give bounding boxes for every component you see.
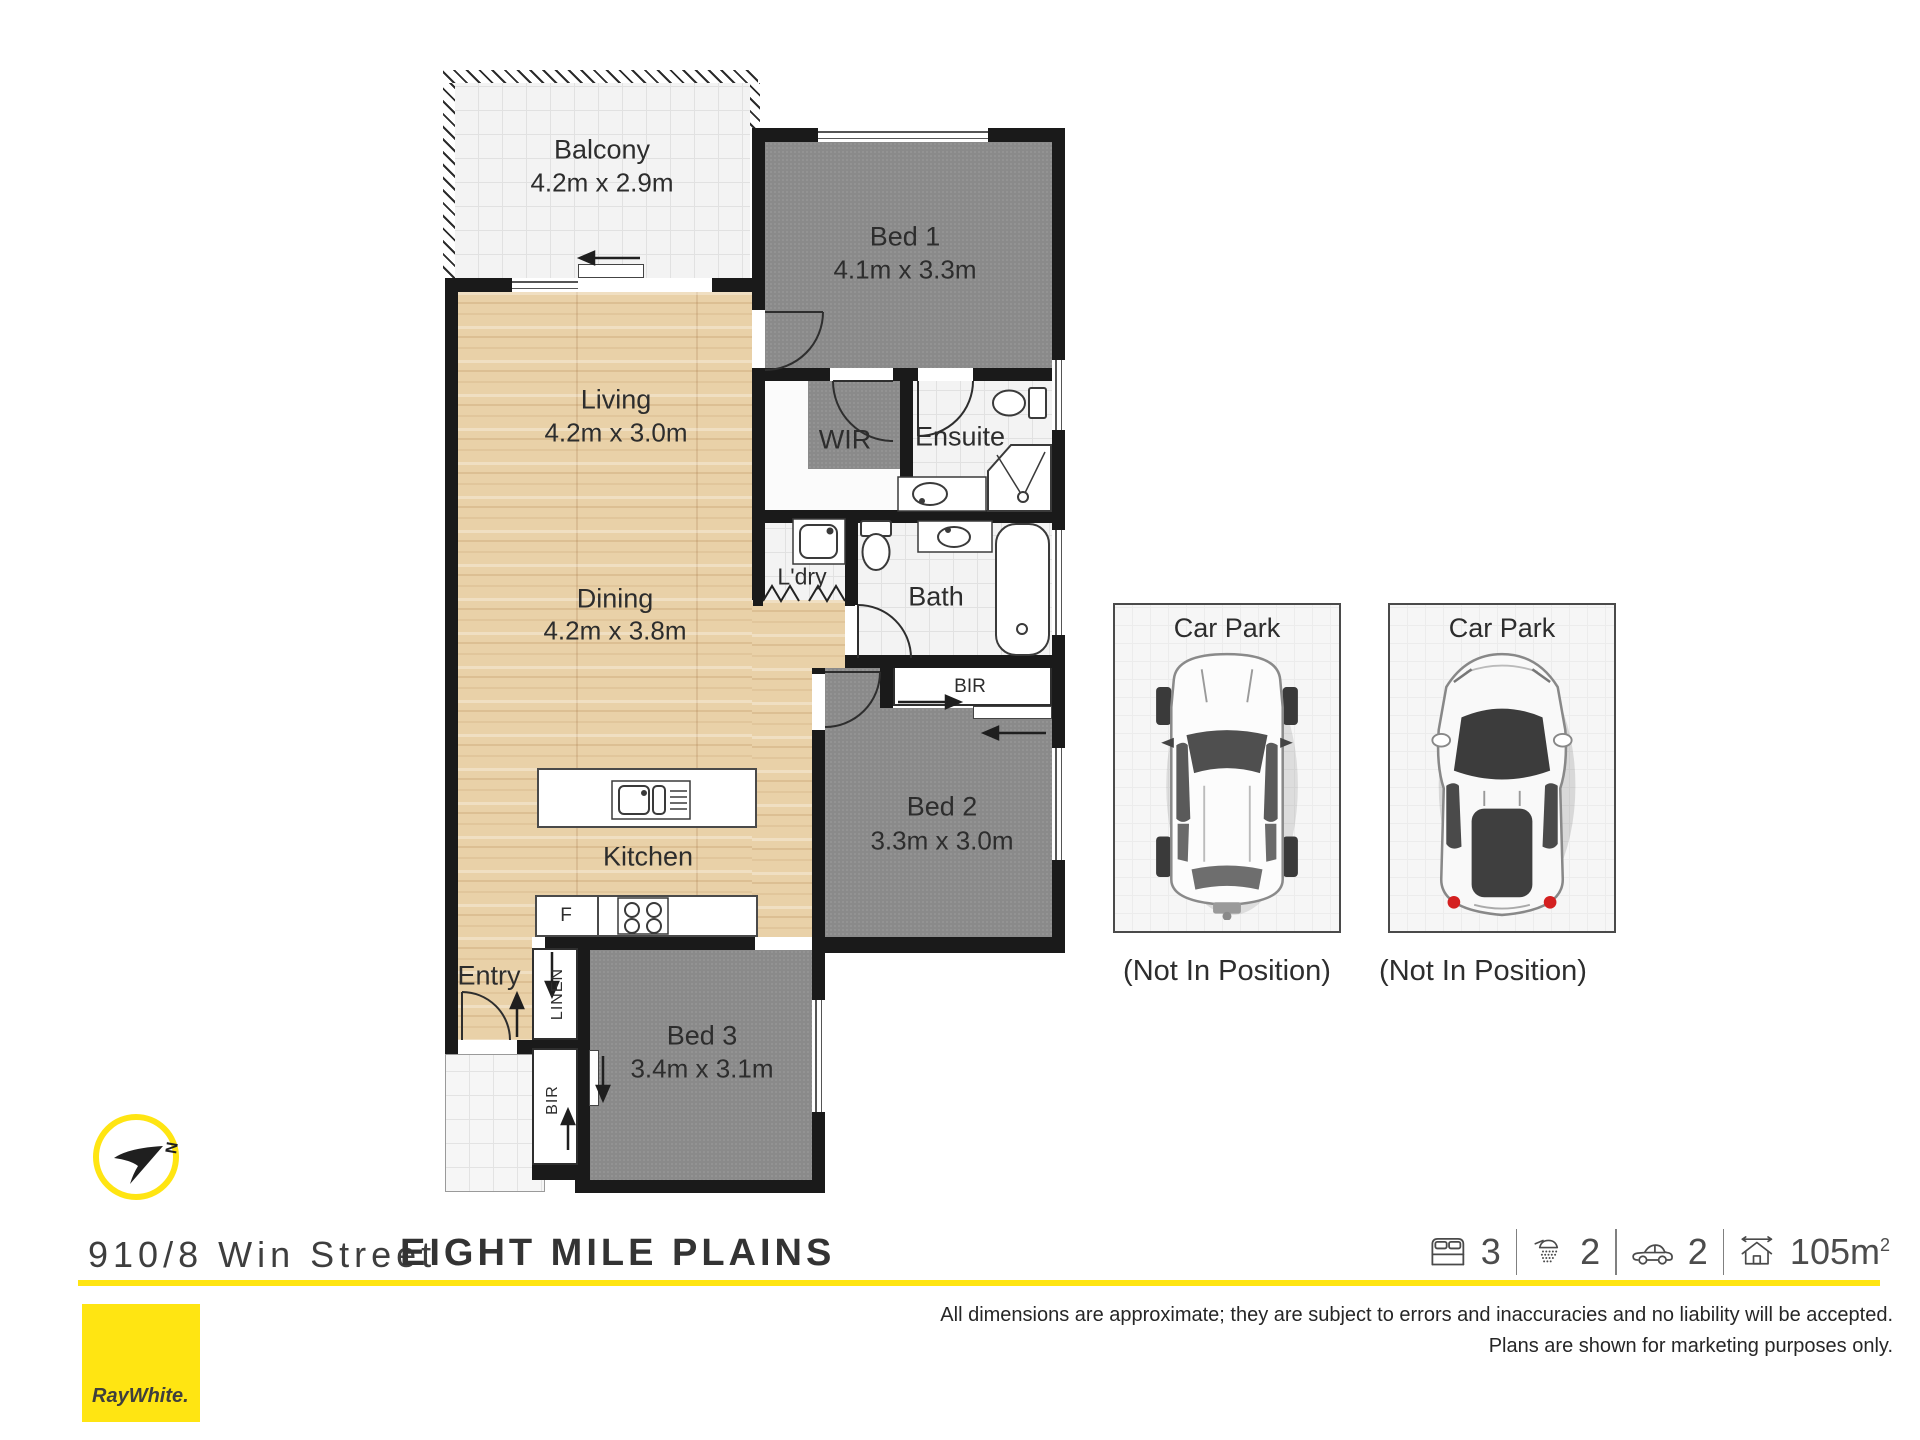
entry-landing-tiles [445, 1054, 545, 1192]
bed3-door-gap [755, 937, 812, 950]
wall [752, 128, 765, 310]
bed3-label: Bed 3 [667, 1021, 738, 1052]
property-stats: 3 2 2 105m2 [1430, 1224, 1890, 1280]
kitchen-label: Kitchen [603, 842, 693, 873]
ensuite-label: Ensuite [915, 422, 1005, 453]
raywhite-logo: RayWhite. [82, 1304, 200, 1422]
car-sports-top-icon [1427, 644, 1577, 920]
compass-icon: N [96, 1117, 180, 1197]
wall [893, 368, 918, 381]
wall [532, 1165, 578, 1180]
shower-icon [1532, 1229, 1565, 1275]
balcony-slider-leaf [578, 264, 644, 278]
area-value: 105m2 [1790, 1231, 1890, 1273]
carpark-2: Car Park [1388, 603, 1616, 933]
wall [812, 1112, 825, 1180]
kitchen-island [537, 768, 757, 828]
balcony-window [512, 278, 578, 292]
ensuite-window [1052, 360, 1065, 430]
living-label: Living [581, 385, 652, 416]
wall [900, 381, 913, 510]
floorplan-page: N Balcony 4.2m x 2.9m Bed 1 4.1m x 3.3m … [0, 0, 1920, 1440]
wir-label: WIR [819, 425, 871, 456]
bed3-dims: 3.4m x 3.1m [630, 1054, 773, 1085]
entry-label: Entry [457, 961, 520, 992]
wall [812, 668, 825, 674]
balcony-door-gap [644, 278, 712, 292]
bed3-window [812, 1000, 825, 1112]
stat-divider [1615, 1229, 1616, 1275]
car-suv-top-icon [1152, 644, 1302, 920]
bed-count: 3 [1481, 1231, 1501, 1273]
wall [845, 655, 1065, 668]
wall [812, 730, 825, 937]
bath-label: Bath [908, 582, 964, 613]
zigzag-post [845, 592, 855, 606]
wall [1052, 128, 1065, 360]
bed1-window [818, 128, 988, 142]
dining-label: Dining [577, 584, 654, 615]
wall [445, 1040, 458, 1054]
wall [1052, 635, 1065, 748]
wall [752, 368, 765, 600]
disclaimer-line2: Plans are shown for marketing purposes o… [913, 1331, 1893, 1362]
bed2-floor [825, 708, 1052, 937]
carpark-1-note: (Not In Position) [1123, 955, 1331, 988]
ldry-label: L'dry [777, 564, 826, 591]
bed2-floor-upper [825, 668, 880, 712]
wall [752, 510, 1065, 523]
bed-icon [1430, 1229, 1466, 1275]
wall [880, 668, 893, 708]
stat-divider [1516, 1229, 1517, 1275]
balcony-hatch-top [443, 70, 758, 83]
car-count: 2 [1688, 1231, 1708, 1273]
car-icon [1632, 1230, 1673, 1274]
corridor-floor [752, 668, 812, 937]
bed2-window [1052, 748, 1065, 860]
balcony-hatch-left [443, 83, 455, 278]
wall [532, 1040, 578, 1048]
dining-dims: 4.2m x 3.8m [543, 616, 686, 647]
bath-window [1052, 530, 1065, 635]
bed2-dims: 3.3m x 3.0m [870, 826, 1013, 857]
carpark-2-note: (Not In Position) [1379, 955, 1587, 988]
wall [765, 368, 830, 381]
wall [445, 278, 458, 1040]
carpark-1-title: Car Park [1115, 613, 1339, 644]
balcony-dims: 4.2m x 2.9m [530, 168, 673, 199]
wall [812, 937, 1065, 953]
wall [575, 1180, 825, 1193]
carpark-1: Car Park [1113, 603, 1341, 933]
bed1-label: Bed 1 [870, 222, 941, 253]
area-icon [1739, 1228, 1775, 1276]
area-sup: 2 [1880, 1235, 1890, 1255]
balcony-label: Balcony [554, 135, 650, 166]
address-text: 910/8 Win Street [88, 1234, 436, 1276]
bir2-slider-leaf [973, 706, 1052, 719]
linen-label: LINEN [549, 968, 567, 1020]
bir2-label: BIR [954, 676, 986, 698]
disclaimer-text: All dimensions are approximate; they are… [913, 1300, 1893, 1362]
raywhite-wordmark: RayWhite. [92, 1385, 189, 1408]
bed1-dims: 4.1m x 3.3m [833, 255, 976, 286]
carpark-2-title: Car Park [1390, 613, 1614, 644]
hall-floor [752, 600, 845, 668]
wall [812, 950, 825, 1000]
stat-divider [1723, 1229, 1724, 1275]
accent-rule [78, 1280, 1880, 1286]
bath-count: 2 [1580, 1231, 1600, 1273]
bed2-label: Bed 2 [907, 792, 978, 823]
bir3-label: BIR [544, 1085, 562, 1115]
living-dims: 4.2m x 3.0m [544, 418, 687, 449]
disclaimer-line1: All dimensions are approximate; they are… [913, 1300, 1893, 1331]
bed3-slider-leaf [589, 1050, 599, 1106]
zigzag-post [753, 592, 763, 606]
suburb-text: EIGHT MILE PLAINS [400, 1232, 835, 1275]
north-indicator: N [161, 1140, 180, 1154]
fridge-label: F [560, 905, 572, 927]
